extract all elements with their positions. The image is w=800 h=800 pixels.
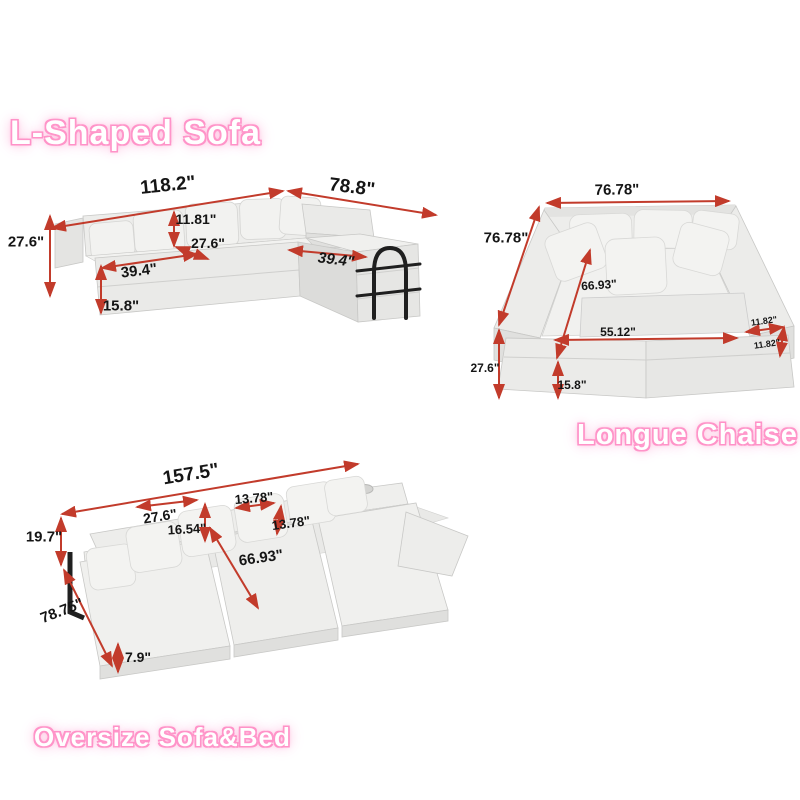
dim-o-mattress-height: 7.9" — [125, 649, 151, 665]
dim-o-back-height: 19.7" — [26, 529, 62, 546]
title-longue-chaise: Longue Chaise — [577, 419, 798, 452]
dim-l-overall-height: 27.6" — [8, 234, 44, 251]
dim-o-cushion-height: 16.54" — [167, 520, 206, 537]
dim-l-backrest-height: 11.81" — [176, 211, 217, 227]
title-l-shaped-sofa: L-Shaped Sofa — [10, 114, 261, 153]
dim-c-overall-height: 27.6" — [470, 361, 499, 375]
longue-chaise-image — [494, 205, 794, 398]
dim-c-depth: 76.78" — [484, 230, 529, 247]
dim-l-seat-depth: 27.6" — [191, 235, 225, 251]
title-oversize-sofa-bed: Oversize Sofa&Bed — [34, 722, 291, 753]
product-dimension-diagram: L-Shaped Sofa Longue Chaise Oversize Sof… — [0, 0, 800, 800]
dim-c-width: 76.78" — [595, 181, 640, 199]
dim-l-base-height: 15.8" — [103, 298, 139, 315]
dim-c-inner-diagonal: 66.93" — [581, 277, 618, 293]
dim-c-base-height: 15.8" — [557, 378, 586, 392]
dim-c-inner-width: 55.12" — [600, 325, 636, 339]
